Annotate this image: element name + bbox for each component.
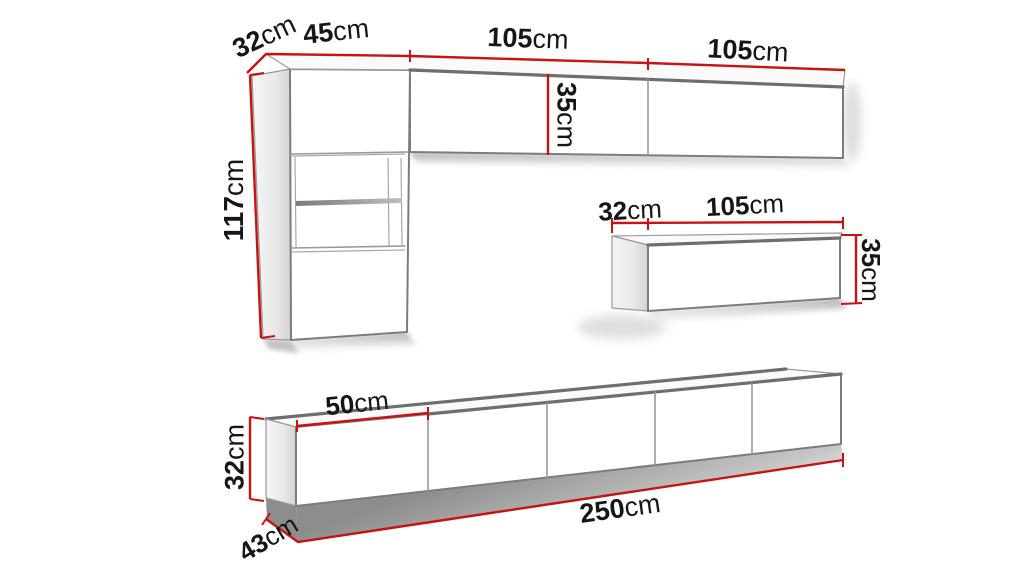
tv-stand-side-panel [266, 419, 296, 506]
dim-label-wall-cabinet-height: 35cm [856, 238, 886, 302]
dimension-ticks-32-tv [250, 417, 264, 501]
wall-cabinet-cast-shadow [578, 315, 666, 339]
dim-label-upper-cabinet-1-width: 105cm [487, 22, 569, 55]
dim-label-tall-cabinet-width: 45cm [302, 13, 371, 50]
dim-label-tall-cabinet-height: 117cm [218, 159, 249, 242]
diagram-canvas: 32cm 45cm 105cm 105cm 117cm 35cm 32cm 10… [0, 0, 1024, 576]
tall-cabinet-side-panel [252, 69, 291, 340]
tall-cabinet [252, 69, 416, 353]
dim-label-upper-cabinet-height: 35cm [552, 82, 582, 148]
dim-label-upper-cabinet-2-width: 105cm [707, 33, 790, 67]
wall-cabinet-front [648, 238, 840, 311]
wall-cabinet-side-panel [612, 236, 648, 311]
wall-cabinet [578, 233, 847, 339]
upper-run-right-shadow [843, 82, 861, 162]
furniture-dimension-diagram: 32cm 45cm 105cm 105cm 117cm 35cm 32cm 10… [0, 0, 1024, 576]
dim-label-tv-stand-height: 32cm [219, 424, 249, 490]
dim-label-wall-cabinet-width: 105cm [705, 188, 785, 222]
dim-label-wall-cabinet-depth: 32cm [597, 193, 662, 226]
